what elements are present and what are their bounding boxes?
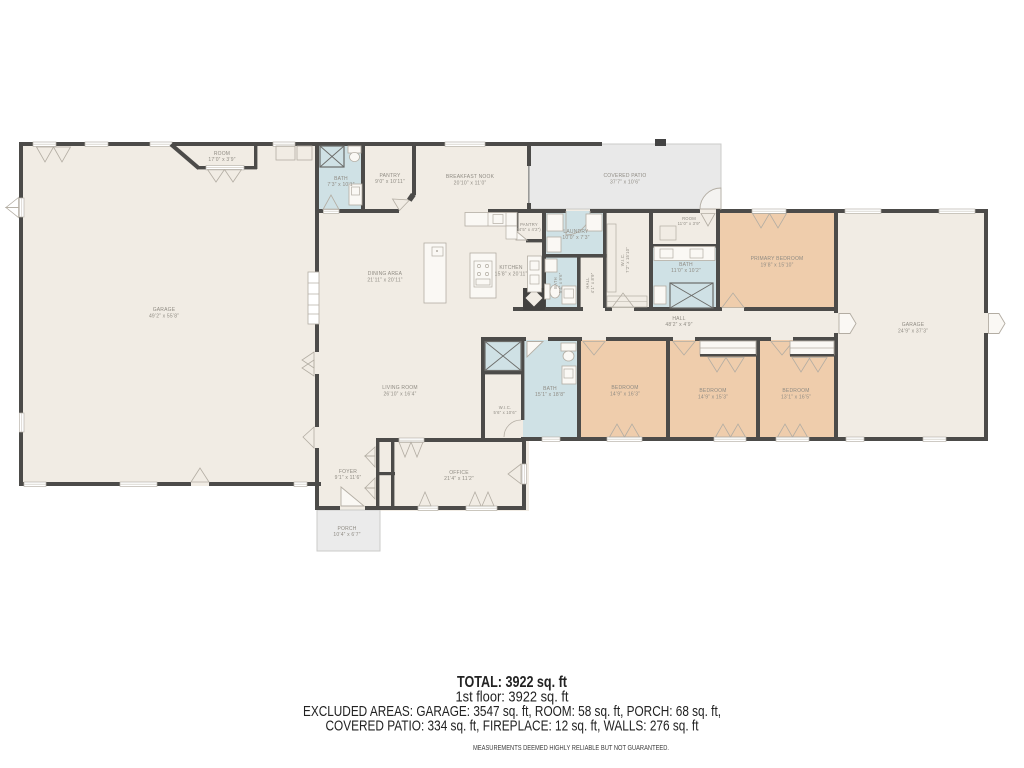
svg-text:10’0” x 7’3”: 10’0” x 7’3” [562, 235, 589, 241]
svg-text:KITCHEN: KITCHEN [499, 265, 523, 271]
svg-text:BREAKFAST NOOK: BREAKFAST NOOK [446, 174, 495, 180]
svg-text:4’1” x 8’9”: 4’1” x 8’9” [590, 272, 595, 293]
svg-text:14’9” x 15’3”: 14’9” x 15’3” [698, 394, 728, 400]
svg-text:5’6” x 10’6”: 5’6” x 10’6” [493, 410, 517, 415]
svg-text:17’0” x 3’9”: 17’0” x 3’9” [208, 157, 235, 163]
svg-text:20’10” x 11’0”: 20’10” x 11’0” [454, 180, 487, 186]
svg-text:PRIMARY BEDROOM: PRIMARY BEDROOM [751, 256, 804, 262]
svg-text:10’4” x 6’7”: 10’4” x 6’7” [333, 532, 360, 538]
svg-text:GARAGE: GARAGE [153, 307, 176, 313]
svg-text:COVERED PATIO: COVERED PATIO [604, 173, 647, 179]
svg-text:9’0” x 10’11”: 9’0” x 10’11” [375, 179, 405, 185]
svg-text:13’1” x 16’5”: 13’1” x 16’5” [781, 394, 811, 400]
svg-text:(4’5” x 4’2”): (4’5” x 4’2”) [517, 227, 541, 232]
svg-text:14’9” x 16’3”: 14’9” x 16’3” [610, 391, 640, 397]
svg-text:15’8” x 20’11”: 15’8” x 20’11” [495, 271, 528, 277]
svg-text:26’10” x 16’4”: 26’10” x 16’4” [383, 391, 416, 397]
svg-text:DINING AREA: DINING AREA [368, 271, 403, 277]
svg-text:9’1” x 11’6”: 9’1” x 11’6” [335, 475, 362, 481]
svg-text:24’9” x 37’3”: 24’9” x 37’3” [898, 328, 928, 334]
svg-text:15’1” x 18’8”: 15’1” x 18’8” [535, 392, 565, 398]
svg-text:MEASUREMENTS DEEMED HIGHLY REL: MEASUREMENTS DEEMED HIGHLY RELIABLE BUT … [473, 743, 669, 752]
svg-text:BEDROOM: BEDROOM [611, 385, 638, 391]
svg-text:21’4” x 11’2”: 21’4” x 11’2” [444, 476, 474, 482]
svg-text:11’0” x 3’9”: 11’0” x 3’9” [678, 221, 701, 226]
svg-text:19’8” x 15’10”: 19’8” x 15’10” [760, 262, 793, 268]
svg-text:BEDROOM: BEDROOM [699, 388, 726, 394]
svg-text:48’2” x 4’9”: 48’2” x 4’9” [665, 322, 692, 328]
svg-text:COVERED PATIO: 334 sq. ft, FIR: COVERED PATIO: 334 sq. ft, FIREPLACE: 12… [326, 718, 700, 735]
svg-text:49’2” x 55’8”: 49’2” x 55’8” [149, 313, 179, 319]
svg-text:7’2” x 15’10”: 7’2” x 15’10” [625, 247, 630, 273]
svg-text:7’3” x 10’1”: 7’3” x 10’1” [327, 182, 354, 188]
svg-text:5’4” x 9’6”: 5’4” x 9’6” [558, 272, 563, 293]
svg-text:BEDROOM: BEDROOM [782, 388, 809, 394]
svg-text:GARAGE: GARAGE [902, 322, 925, 328]
svg-text:21’11” x 20’11”: 21’11” x 20’11” [367, 277, 402, 283]
svg-text:37’7” x 10’6”: 37’7” x 10’6” [610, 179, 640, 185]
svg-text:LIVING ROOM: LIVING ROOM [382, 385, 418, 391]
svg-text:11’0” x 10’2”: 11’0” x 10’2” [671, 268, 701, 274]
